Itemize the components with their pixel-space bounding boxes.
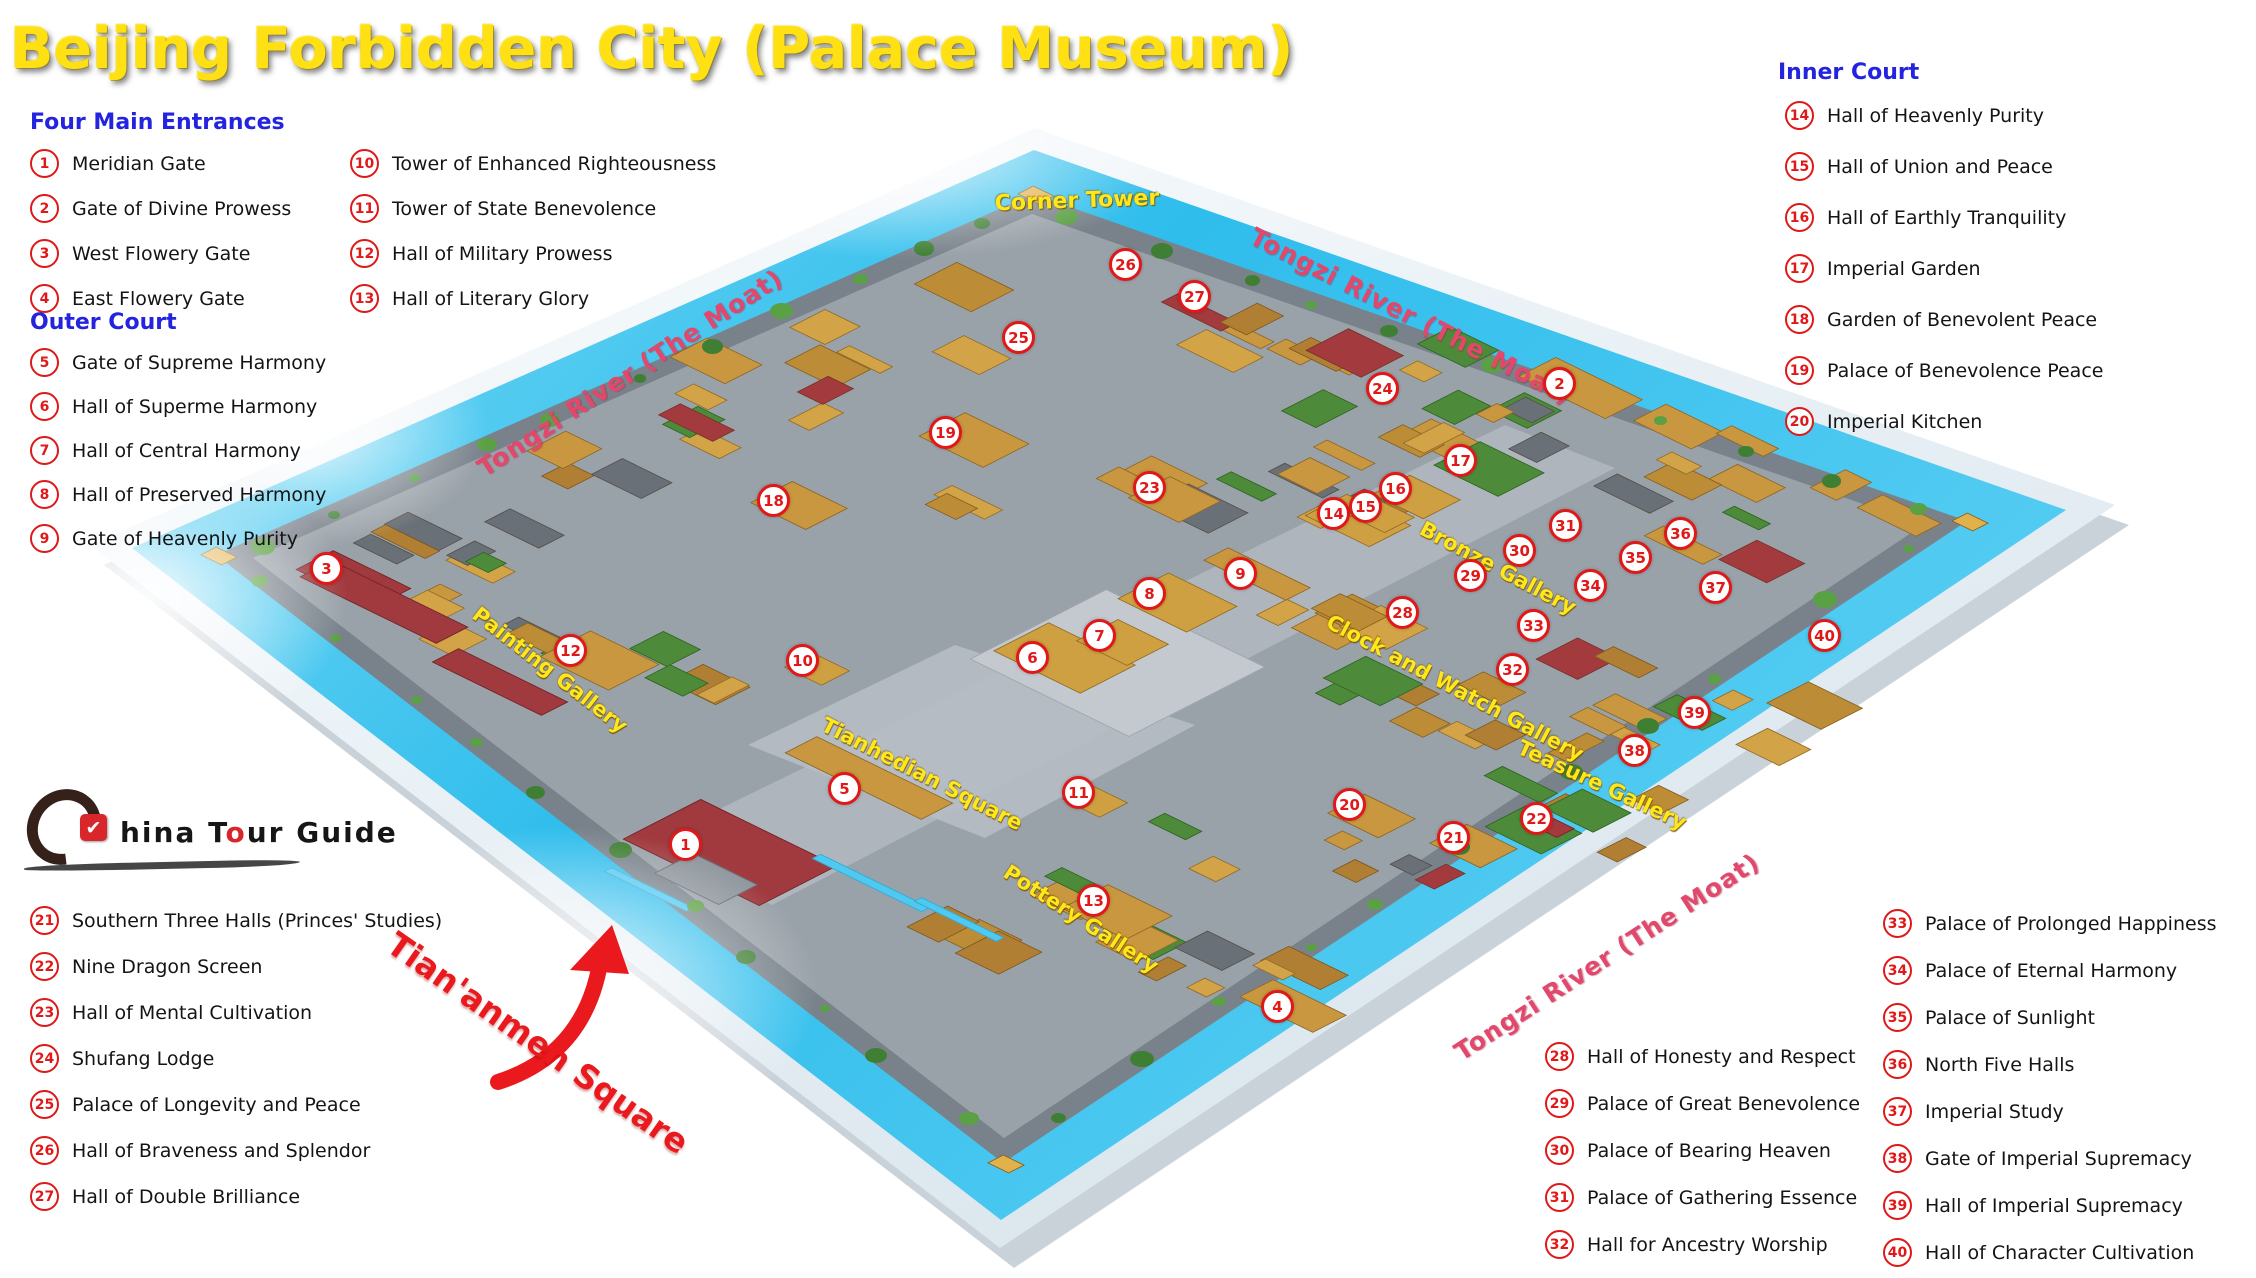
legend-item: 9Gate of Heavenly Purity <box>30 524 326 553</box>
tree <box>411 696 422 704</box>
legend-item: 2Gate of Divine Prowess <box>30 194 291 223</box>
map-marker: 39 <box>1678 696 1711 729</box>
tree <box>328 511 340 520</box>
legend-item-label: Southern Three Halls (Princes' Studies) <box>72 910 442 932</box>
legend-item-number: 20 <box>1785 407 1814 436</box>
legend-item: 29Palace of Great Benevolence <box>1545 1089 1860 1118</box>
map-marker: 7 <box>1083 619 1116 652</box>
legend-item: 21Southern Three Halls (Princes' Studies… <box>30 906 442 935</box>
tree <box>853 274 868 284</box>
legend-item-label: Imperial Kitchen <box>1827 411 1982 433</box>
legend-item-label: Gate of Divine Prowess <box>72 198 291 220</box>
legend-item-label: Hall of Superme Harmony <box>72 396 317 418</box>
legend-item-number: 14 <box>1785 101 1814 130</box>
legend-item-number: 3 <box>30 239 59 268</box>
legend-item-number: 17 <box>1785 254 1814 283</box>
tree <box>687 900 704 912</box>
legend-list-southeast-b: 33Palace of Prolonged Happiness34Palace … <box>1883 909 2217 1267</box>
legend-item-number: 36 <box>1883 1050 1912 1079</box>
legend-item-number: 16 <box>1785 203 1814 232</box>
logo-checkmark-icon: ✔ <box>80 814 107 841</box>
legend-item-label: Hall for Ancestry Worship <box>1587 1234 1828 1256</box>
legend-item-number: 7 <box>30 436 59 465</box>
legend-item-label: Gate of Imperial Supremacy <box>1925 1148 2192 1170</box>
legend-item-label: Tower of Enhanced Righteousness <box>392 153 716 175</box>
map-marker: 18 <box>757 484 790 517</box>
legend-item: 8Hall of Preserved Harmony <box>30 480 326 509</box>
legend-list-entrances: 1Meridian Gate2Gate of Divine Prowess3We… <box>30 149 291 313</box>
tree <box>770 303 793 319</box>
map-marker: 24 <box>1366 372 1399 405</box>
legend-item-number: 40 <box>1883 1238 1912 1267</box>
legend-item: 19Palace of Benevolence Peace <box>1785 356 2103 385</box>
legend-item: 3West Flowery Gate <box>30 239 291 268</box>
legend-item-number: 8 <box>30 480 59 509</box>
legend-item: 17Imperial Garden <box>1785 254 2103 283</box>
legend-item: 28Hall of Honesty and Respect <box>1545 1042 1860 1071</box>
legend-item: 15Hall of Union and Peace <box>1785 152 2103 181</box>
tree <box>251 575 268 587</box>
logo-text: hina Tour Guide <box>120 816 398 849</box>
legend-item: 11Tower of State Benevolence <box>350 194 716 223</box>
legend-item-number: 31 <box>1545 1183 1574 1212</box>
legend-item: 26Hall of Braveness and Splendor <box>30 1136 442 1165</box>
legend-item: 20Imperial Kitchen <box>1785 407 2103 436</box>
map-marker: 29 <box>1454 559 1487 592</box>
map-marker: 30 <box>1503 534 1536 567</box>
map-marker: 40 <box>1808 619 1841 652</box>
legend-item-label: Hall of Honesty and Respect <box>1587 1046 1856 1068</box>
map-marker: 22 <box>1520 802 1553 835</box>
tree <box>1305 301 1317 309</box>
legend-item-label: Hall of Literary Glory <box>392 288 589 310</box>
legend-item-number: 33 <box>1883 909 1912 938</box>
legend-item-label: West Flowery Gate <box>72 243 250 265</box>
legend-item-number: 37 <box>1883 1097 1912 1126</box>
legend-item: 36North Five Halls <box>1883 1050 2217 1079</box>
legend-item-label: Palace of Great Benevolence <box>1587 1093 1860 1115</box>
logo-text-part: hina T <box>120 816 226 849</box>
legend-heading-four-main-entrances: Four Main Entrances <box>30 110 285 135</box>
legend-item-number: 29 <box>1545 1089 1574 1118</box>
map-marker: 2 <box>1543 367 1576 400</box>
legend-item-label: Shufang Lodge <box>72 1048 214 1070</box>
map-marker: 32 <box>1496 653 1529 686</box>
legend-item-label: Palace of Bearing Heaven <box>1587 1140 1831 1162</box>
legend-item-number: 23 <box>30 998 59 1027</box>
legend-item: 32Hall for Ancestry Worship <box>1545 1230 1860 1259</box>
legend-item: 39Hall of Imperial Supremacy <box>1883 1191 2217 1220</box>
tree <box>1212 997 1226 1007</box>
legend-item-label: Palace of Longevity and Peace <box>72 1094 361 1116</box>
tree <box>1637 718 1659 734</box>
legend-list-southeast-a: 28Hall of Honesty and Respect29Palace of… <box>1545 1042 1860 1259</box>
legend-item-label: Palace of Sunlight <box>1925 1007 2095 1029</box>
legend-item: 30Palace of Bearing Heaven <box>1545 1136 1860 1165</box>
china-tour-guide-logo: ✔ hina Tour Guide <box>24 786 324 881</box>
legend-heading-inner-court: Inner Court <box>1778 60 1919 85</box>
map-marker: 23 <box>1133 471 1166 504</box>
legend-item: 38Gate of Imperial Supremacy <box>1883 1144 2217 1173</box>
tree <box>736 950 756 964</box>
legend-item: 6Hall of Superme Harmony <box>30 392 326 421</box>
map-marker: 36 <box>1664 517 1697 550</box>
legend-item-number: 26 <box>30 1136 59 1165</box>
legend-item-label: Hall of Preserved Harmony <box>72 484 326 506</box>
map-marker: 26 <box>1109 248 1142 281</box>
legend-item: 22Nine Dragon Screen <box>30 952 442 981</box>
map-marker: 25 <box>1002 321 1035 354</box>
legend-item: 16Hall of Earthly Tranquility <box>1785 203 2103 232</box>
page-title: Beijing Forbidden City (Palace Museum) <box>10 16 1293 82</box>
map-marker: 38 <box>1618 734 1651 767</box>
legend-item-label: Tower of State Benevolence <box>392 198 656 220</box>
map-marker: 6 <box>1016 641 1049 674</box>
map-marker: 3 <box>310 552 343 585</box>
tree <box>1813 591 1837 608</box>
tree <box>865 1048 887 1064</box>
legend-item-number: 10 <box>350 149 379 178</box>
tree <box>1151 243 1173 258</box>
legend-item-label: Hall of Union and Peace <box>1827 156 2053 178</box>
tree <box>959 1112 979 1126</box>
map-marker: 17 <box>1444 444 1477 477</box>
legend-item: 12Hall of Military Prowess <box>350 239 716 268</box>
logo-text-part: ur Guide <box>247 816 398 849</box>
logo-red-o: o <box>226 816 247 849</box>
legend-item: 33Palace of Prolonged Happiness <box>1883 909 2217 938</box>
map-marker: 9 <box>1224 557 1257 590</box>
map-marker: 13 <box>1077 884 1110 917</box>
tree <box>1245 275 1260 285</box>
legend-item-label: Meridian Gate <box>72 153 206 175</box>
tree <box>330 634 341 642</box>
legend-item-number: 35 <box>1883 1003 1912 1032</box>
legend-item: 23Hall of Mental Cultivation <box>30 998 442 1027</box>
legend-item: 13Hall of Literary Glory <box>350 284 716 313</box>
map-marker: 10 <box>786 644 819 677</box>
legend-item-number: 5 <box>30 348 59 377</box>
tree <box>1910 503 1926 514</box>
map-marker: 20 <box>1333 788 1366 821</box>
legend-item-number: 21 <box>30 906 59 935</box>
legend-item-number: 34 <box>1883 956 1912 985</box>
legend-item-label: Palace of Gathering Essence <box>1587 1187 1857 1209</box>
legend-item-number: 22 <box>30 952 59 981</box>
legend-item-number: 2 <box>30 194 59 223</box>
legend-item-label: Imperial Garden <box>1827 258 1981 280</box>
legend-item: 37Imperial Study <box>1883 1097 2217 1126</box>
map-marker: 35 <box>1619 541 1652 574</box>
legend-list-inner-court: 14Hall of Heavenly Purity15Hall of Union… <box>1785 101 2103 436</box>
legend-item-label: Garden of Benevolent Peace <box>1827 309 2097 331</box>
legend-item-number: 38 <box>1883 1144 1912 1173</box>
legend-item-label: North Five Halls <box>1925 1054 2074 1076</box>
legend-item-label: Imperial Study <box>1925 1101 2064 1123</box>
map-marker: 34 <box>1574 569 1607 602</box>
legend-item-label: Hall of Character Cultivation <box>1925 1242 2194 1264</box>
legend-item-number: 28 <box>1545 1042 1574 1071</box>
map-marker: 15 <box>1349 490 1382 523</box>
legend-item-label: Palace of Benevolence Peace <box>1827 360 2103 382</box>
map-marker: 11 <box>1062 776 1095 809</box>
legend-item-number: 9 <box>30 524 59 553</box>
map-marker: 16 <box>1379 472 1412 505</box>
tree <box>526 786 545 799</box>
legend-list-outer-court: 5Gate of Supreme Harmony6Hall of Superme… <box>30 348 326 553</box>
legend-item-number: 32 <box>1545 1230 1574 1259</box>
legend-item: 10Tower of Enhanced Righteousness <box>350 149 716 178</box>
tree <box>914 241 934 255</box>
legend-item: 35Palace of Sunlight <box>1883 1003 2217 1032</box>
map-marker: 5 <box>828 772 861 805</box>
legend-item-label: Hall of Braveness and Splendor <box>72 1140 370 1162</box>
tree <box>1822 474 1841 487</box>
legend-item: 18Garden of Benevolent Peace <box>1785 305 2103 334</box>
legend-item-label: Gate of Supreme Harmony <box>72 352 326 374</box>
legend-item: 14Hall of Heavenly Purity <box>1785 101 2103 130</box>
legend-item-number: 24 <box>30 1044 59 1073</box>
legend-item: 1Meridian Gate <box>30 149 291 178</box>
legend-item-label: Hall of Double Brilliance <box>72 1186 300 1208</box>
legend-item-label: Gate of Heavenly Purity <box>72 528 298 550</box>
legend-item: 27Hall of Double Brilliance <box>30 1182 442 1211</box>
legend-item-label: Hall of Earthly Tranquility <box>1827 207 2066 229</box>
legend-item-number: 25 <box>30 1090 59 1119</box>
legend-item-number: 18 <box>1785 305 1814 334</box>
legend-item: 5Gate of Supreme Harmony <box>30 348 326 377</box>
map-marker: 27 <box>1178 280 1211 313</box>
legend-item-label: Palace of Eternal Harmony <box>1925 960 2177 982</box>
map-marker: 19 <box>929 416 962 449</box>
legend-item-number: 11 <box>350 194 379 223</box>
legend-item-number: 4 <box>30 284 59 313</box>
map-marker: 21 <box>1437 821 1470 854</box>
map-marker: 8 <box>1133 577 1166 610</box>
legend-item-label: Hall of Imperial Supremacy <box>1925 1195 2183 1217</box>
map-marker: 1 <box>669 828 702 861</box>
legend-list-southwest: 21Southern Three Halls (Princes' Studies… <box>30 906 442 1211</box>
map-marker: 14 <box>1317 497 1350 530</box>
map-marker: 33 <box>1517 609 1550 642</box>
map-marker: 28 <box>1386 596 1419 629</box>
legend-item: 34Palace of Eternal Harmony <box>1883 956 2217 985</box>
legend-item-label: Hall of Military Prowess <box>392 243 612 265</box>
legend-item-label: Hall of Mental Cultivation <box>72 1002 312 1024</box>
legend-item-label: Nine Dragon Screen <box>72 956 262 978</box>
legend-list-towers: 10Tower of Enhanced Righteousness11Tower… <box>350 149 716 313</box>
legend-item: 40Hall of Character Cultivation <box>1883 1238 2217 1267</box>
legend-item: 4East Flowery Gate <box>30 284 291 313</box>
legend-item-number: 12 <box>350 239 379 268</box>
legend-item-number: 19 <box>1785 356 1814 385</box>
legend-item: 24Shufang Lodge <box>30 1044 442 1073</box>
tree <box>1130 1051 1154 1068</box>
tree <box>1380 325 1397 337</box>
legend-heading-outer-court: Outer Court <box>30 310 177 335</box>
legend-item-number: 15 <box>1785 152 1814 181</box>
legend-item-number: 6 <box>30 392 59 421</box>
forbidden-city-map-page: Corner TowerTongzi River (The Moat)Tongz… <box>0 0 2256 1278</box>
map-marker: 37 <box>1699 571 1732 604</box>
legend-item-number: 30 <box>1545 1136 1574 1165</box>
map-marker: 12 <box>554 634 587 667</box>
legend-item-number: 39 <box>1883 1191 1912 1220</box>
legend-item-label: Hall of Central Harmony <box>72 440 301 462</box>
legend-item-number: 13 <box>350 284 379 313</box>
legend-item: 25Palace of Longevity and Peace <box>30 1090 442 1119</box>
legend-item-number: 1 <box>30 149 59 178</box>
legend-item-number: 27 <box>30 1182 59 1211</box>
legend-item-label: Palace of Prolonged Happiness <box>1925 913 2217 935</box>
legend-item: 31Palace of Gathering Essence <box>1545 1183 1860 1212</box>
legend-item-label: Hall of Heavenly Purity <box>1827 105 2044 127</box>
map-marker: 31 <box>1549 509 1582 542</box>
map-marker: 4 <box>1261 990 1294 1023</box>
legend-item: 7Hall of Central Harmony <box>30 436 326 465</box>
legend-item-label: East Flowery Gate <box>72 288 245 310</box>
